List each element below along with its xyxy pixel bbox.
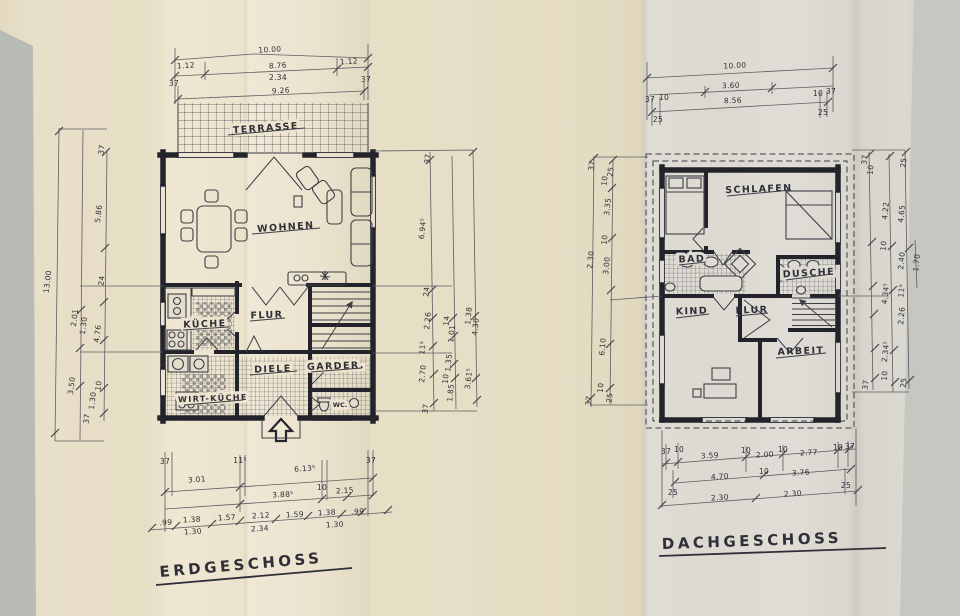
dim-text: 10: [674, 445, 684, 454]
dim-text: 2.30: [711, 493, 729, 503]
dim-text: 37: [421, 403, 431, 414]
dim-text: 10: [441, 373, 451, 384]
dim-text: 37: [423, 153, 433, 164]
dim-text: 11⁵: [233, 456, 246, 465]
plan-drawing: TERRASSE WOHNEN KÜCHE FLUR DIELE GARDER.…: [0, 0, 960, 616]
dim-text: 3.35: [602, 197, 613, 216]
dim-text: 2.40: [896, 251, 907, 270]
dim-text: 25: [818, 108, 828, 117]
dim-text: 6.13⁵: [294, 463, 316, 473]
room-label-garderobe: GARDER.: [307, 360, 365, 373]
dim-text: 4.76: [92, 324, 103, 343]
dim-text: 10.00: [723, 60, 746, 70]
dim-text: 10: [813, 89, 823, 98]
dim-text: 10: [879, 240, 889, 251]
eg-plan: TERRASSE WOHNEN KÜCHE FLUR DIELE GARDER.…: [42, 44, 481, 585]
dim-text: 25: [899, 157, 909, 168]
dim-text: 2.30: [784, 489, 802, 499]
dim-text: 1.30: [78, 316, 89, 335]
dim-text: 37: [860, 154, 870, 165]
dim-text: 1.70: [911, 253, 922, 272]
dim-text: 2.70: [417, 364, 428, 383]
dim-text: 11⁵: [417, 341, 427, 355]
dim-text: 37: [584, 395, 594, 406]
dim-text: 2.12: [252, 511, 270, 521]
dim-text: .99: [159, 518, 172, 528]
dim-text: 25: [668, 488, 678, 497]
dim-text: 3.76: [792, 468, 810, 478]
dg-title: DACHGESCHOSS: [662, 529, 843, 553]
dim-text: 1.12: [340, 57, 358, 67]
dim-text: 24: [96, 275, 106, 286]
dim-text: 3.01: [188, 474, 206, 484]
dim-text: 4.22: [880, 201, 891, 220]
dim-text: 37: [81, 413, 91, 424]
dim-text: 37: [169, 79, 179, 88]
dim-text: 10: [880, 370, 890, 381]
dim-text: 2.00: [756, 450, 774, 460]
dim-text: 25: [653, 115, 663, 124]
dg-stairs: [792, 298, 836, 327]
dim-text: 9.26: [272, 86, 290, 96]
dim-text: 10: [93, 380, 103, 391]
dim-text: 1.38: [183, 515, 201, 525]
dim-text: 4.65: [896, 204, 907, 223]
dim-text: 4.70: [711, 472, 729, 482]
dim-text: 1.57: [218, 513, 236, 523]
dim-text: 37: [366, 456, 376, 465]
dg-plan: SCHLAFEN BAD DUSCHE KIND FLUR ARBEIT: [584, 56, 922, 556]
dim-text: 25: [899, 377, 909, 388]
dim-text: 2.77: [800, 448, 818, 458]
dim-text: 6.10: [597, 337, 608, 356]
dim-text: 10: [659, 93, 669, 102]
eg-title: ERDGESCHOSS: [159, 549, 323, 581]
dim-text: 6.94⁵: [417, 218, 428, 240]
dim-text: 10: [759, 467, 769, 476]
dim-text: 1.35: [443, 353, 454, 372]
dim-text: 10: [741, 446, 751, 455]
dim-text: 3.00: [601, 256, 612, 275]
dim-text: 10.00: [258, 44, 281, 54]
dim-text: 1.12: [177, 61, 195, 71]
dim-text: 1.30: [326, 520, 344, 530]
dim-text: 2.34⁵: [880, 341, 891, 363]
dim-text: 10: [778, 445, 788, 454]
eg-stairs: [312, 292, 371, 349]
dim-text: 2.26: [896, 306, 907, 325]
dim-text: 13.00: [42, 270, 54, 294]
dim-text: 10: [317, 483, 327, 492]
dim-text: 37: [587, 160, 597, 171]
dim-text: 2.34: [269, 73, 287, 82]
dim-text: 25: [841, 481, 851, 490]
dim-text: 5.86: [93, 204, 104, 223]
dim-text: 10: [833, 443, 843, 452]
dim-text: 37: [861, 379, 871, 390]
dim-text: 10: [600, 234, 610, 245]
dim-text: 8.56: [724, 96, 742, 106]
dim-text: 25: [606, 166, 616, 177]
dim-text: 37: [826, 87, 836, 96]
dim-text: 37: [661, 447, 671, 456]
dim-text: 8.76: [269, 61, 287, 71]
dim-text: 37: [96, 144, 106, 155]
dim-text: 10: [866, 164, 876, 175]
dim-text: 2.15: [336, 486, 354, 496]
dim-text: 11⁵: [896, 284, 906, 298]
dim-text: 24: [422, 286, 432, 297]
room-label-schlafen: SCHLAFEN: [725, 183, 793, 196]
dim-text: 4.34⁵: [880, 283, 891, 305]
dim-text: 25: [605, 392, 615, 403]
dim-text: 1.59: [286, 510, 304, 520]
dim-text: 3.50: [66, 376, 77, 395]
dim-text: 37: [845, 442, 855, 451]
dim-text: .99: [351, 507, 364, 517]
room-label-wc: WC.: [333, 401, 347, 409]
dim-text: 10: [600, 175, 610, 186]
dim-text: 37: [361, 75, 371, 84]
dim-text: 37: [645, 95, 655, 104]
dim-text: 3.61⁵: [463, 368, 474, 390]
dim-text: 1.01: [446, 324, 457, 343]
dim-text: 2.34: [251, 524, 269, 534]
dg-dimension-lines: [587, 56, 917, 509]
dim-text: 3.59: [701, 451, 719, 461]
dim-text: 2.30: [585, 250, 596, 269]
dim-text: 4.30: [470, 317, 481, 336]
dim-text: 3.88⁵: [272, 489, 294, 499]
dim-text: 1.85: [445, 383, 456, 402]
dim-text: 10: [596, 382, 606, 393]
dg-interior-walls: [662, 170, 838, 420]
dim-text: 2.26: [422, 311, 433, 330]
dim-text: 1.30: [184, 527, 202, 537]
dim-text: 3.60: [722, 81, 740, 91]
dim-text: 37: [160, 457, 170, 466]
dim-text: 1.38: [318, 508, 336, 518]
scanned-floorplan: TERRASSE WOHNEN KÜCHE FLUR DIELE GARDER.…: [0, 0, 960, 616]
dim-text: 1.30: [87, 391, 98, 410]
